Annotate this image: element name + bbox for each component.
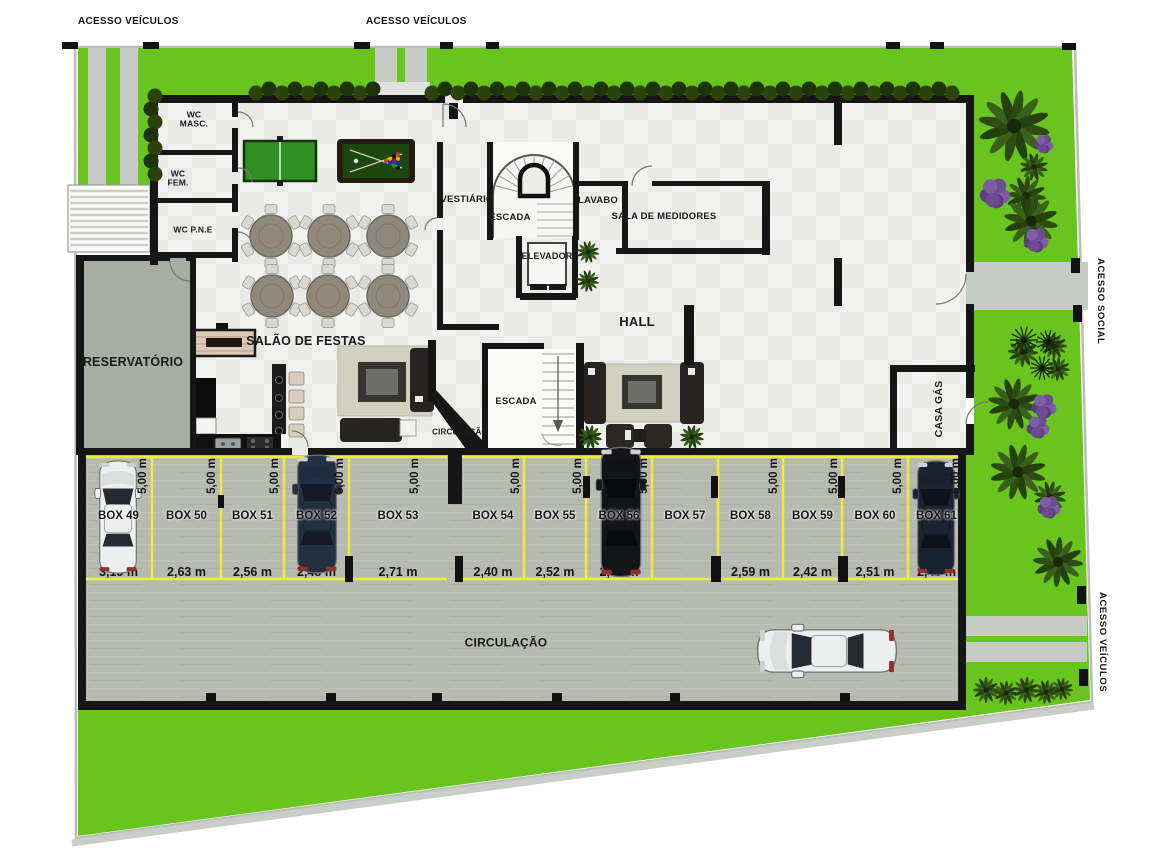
- box-width-dimension: 2,56 m: [233, 565, 272, 579]
- box-width-dimension: 2,40 m: [474, 565, 513, 579]
- ping-pong-table: [244, 136, 316, 186]
- column: [326, 693, 336, 701]
- box-width-dimension: 2,71 m: [379, 565, 418, 579]
- floor-plan: 3,15 m2,63 m2,56 m2,48 m2,71 m2,40 m2,52…: [0, 0, 1150, 853]
- box-width-dimension: 2,48 m: [297, 565, 336, 579]
- column: [583, 476, 590, 498]
- column: [838, 556, 848, 582]
- gate-post: [1071, 258, 1080, 273]
- box-width-dimension: 2,42 m: [793, 565, 832, 579]
- column: [206, 693, 216, 701]
- gate-post: [143, 42, 159, 49]
- reservoir-room: [80, 258, 192, 450]
- column: [432, 693, 442, 701]
- box-width-dimension: 2,62 m: [600, 565, 639, 579]
- gate-post: [1073, 305, 1082, 322]
- gate-post: [486, 42, 499, 49]
- elevator-cab: [528, 243, 566, 290]
- stair-curved: [493, 142, 575, 238]
- gate-post: [1079, 669, 1088, 686]
- gate-post: [930, 42, 944, 49]
- box-width-dimension: 3,15 m: [99, 565, 138, 579]
- gate-post: [1077, 586, 1086, 604]
- box-width-dimension: 2,52 m: [536, 565, 575, 579]
- pool-table: [337, 139, 415, 183]
- column: [840, 693, 850, 701]
- gate-post: [886, 42, 900, 49]
- column: [711, 476, 718, 498]
- floor-plan-drawing: 3,15 m2,63 m2,56 m2,48 m2,71 m2,40 m2,52…: [0, 0, 1150, 853]
- gate-post: [440, 42, 453, 49]
- gate-post: [1062, 43, 1076, 50]
- gate-post: [354, 42, 370, 49]
- box-width-dimension: 2,51 m: [856, 565, 895, 579]
- column: [838, 476, 845, 498]
- box-width-dimension: 2,40 m: [917, 565, 956, 579]
- column: [218, 495, 224, 508]
- column: [455, 556, 463, 582]
- column: [345, 556, 353, 582]
- gate-post: [62, 42, 78, 49]
- column: [670, 693, 680, 701]
- column: [552, 693, 562, 701]
- stair-hall: [488, 349, 576, 448]
- box-width-dimension: 2,59 m: [731, 565, 770, 579]
- garage-ramp: [68, 185, 150, 252]
- box-width-dimension: 2,63 m: [167, 565, 206, 579]
- column: [711, 556, 721, 582]
